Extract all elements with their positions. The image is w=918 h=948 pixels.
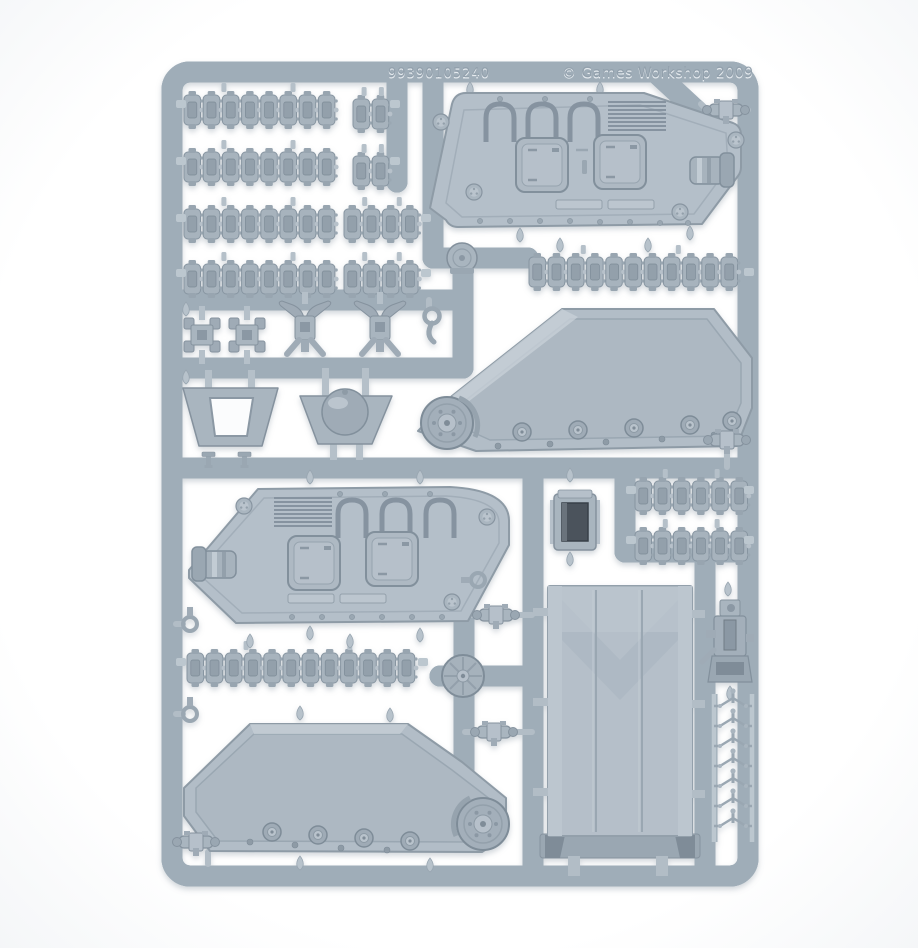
- side-hatch: [366, 532, 418, 586]
- round-disc-part: [447, 243, 477, 274]
- molded-text: 99390105240 99390105240 © Games Workshop…: [388, 65, 754, 82]
- side-hatch: [288, 536, 340, 590]
- copyright-text: © Games Workshop 2009: [562, 65, 754, 81]
- hull-side-panel-left: [189, 487, 509, 623]
- road-wheel-disc: [442, 655, 484, 697]
- sprue-photo: 99390105240 99390105240 © Games Workshop…: [0, 0, 918, 948]
- side-hatch: [594, 135, 646, 189]
- searchlight-box: [550, 490, 600, 550]
- part-code-text: 99390105240: [388, 66, 490, 81]
- headlight: [690, 153, 734, 187]
- side-hatch: [516, 138, 568, 192]
- ramp-panel: [533, 586, 705, 876]
- headlight: [192, 547, 236, 581]
- hull-side-panel-right: [430, 93, 744, 227]
